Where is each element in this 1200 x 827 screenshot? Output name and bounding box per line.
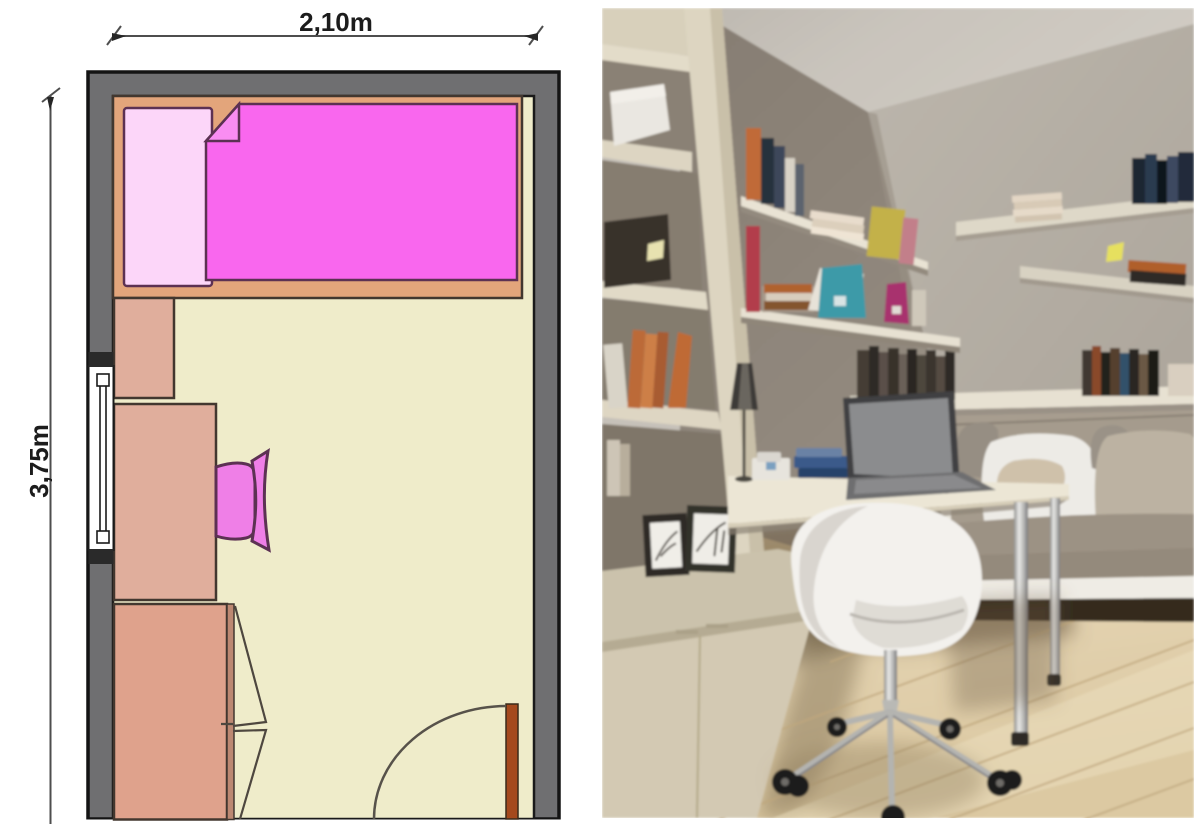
svg-text:3,75m: 3,75m [24, 424, 54, 498]
svg-text:2,10m: 2,10m [299, 7, 373, 37]
